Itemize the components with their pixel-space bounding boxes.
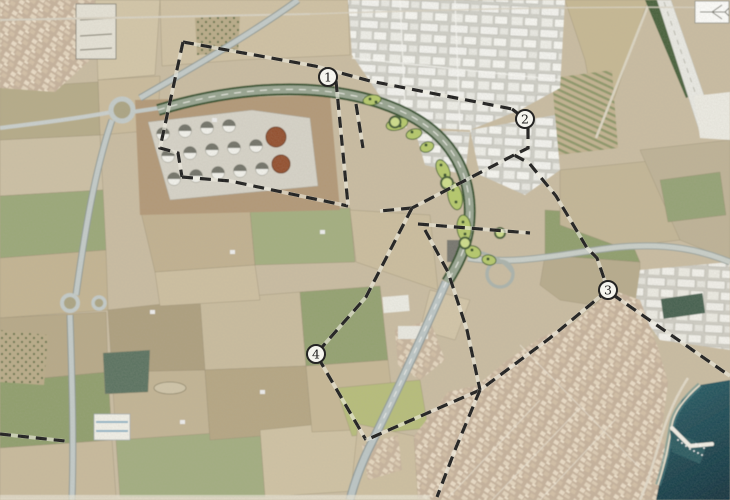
aerial-map: 1234	[0, 0, 730, 500]
roundabout-southwest-2	[93, 297, 105, 309]
zone-marker-label: 3	[604, 283, 612, 298]
scan-edge	[0, 495, 430, 500]
zone-marker-4: 4	[307, 345, 325, 363]
apron	[694, 92, 730, 140]
zone-marker-3: 3	[599, 281, 617, 299]
zone-marker-label: 2	[521, 112, 529, 127]
roundabout-northwest	[111, 99, 133, 121]
walled-compound	[76, 4, 116, 59]
zone-marker-label: 4	[312, 347, 320, 362]
airplane-inset	[695, 1, 729, 23]
zone-marker-1: 1	[319, 68, 337, 86]
base-imagery	[0, 0, 730, 500]
zone-marker-label: 1	[324, 70, 332, 85]
roundabout-southwest	[62, 295, 78, 311]
zone-marker-2: 2	[516, 110, 534, 128]
